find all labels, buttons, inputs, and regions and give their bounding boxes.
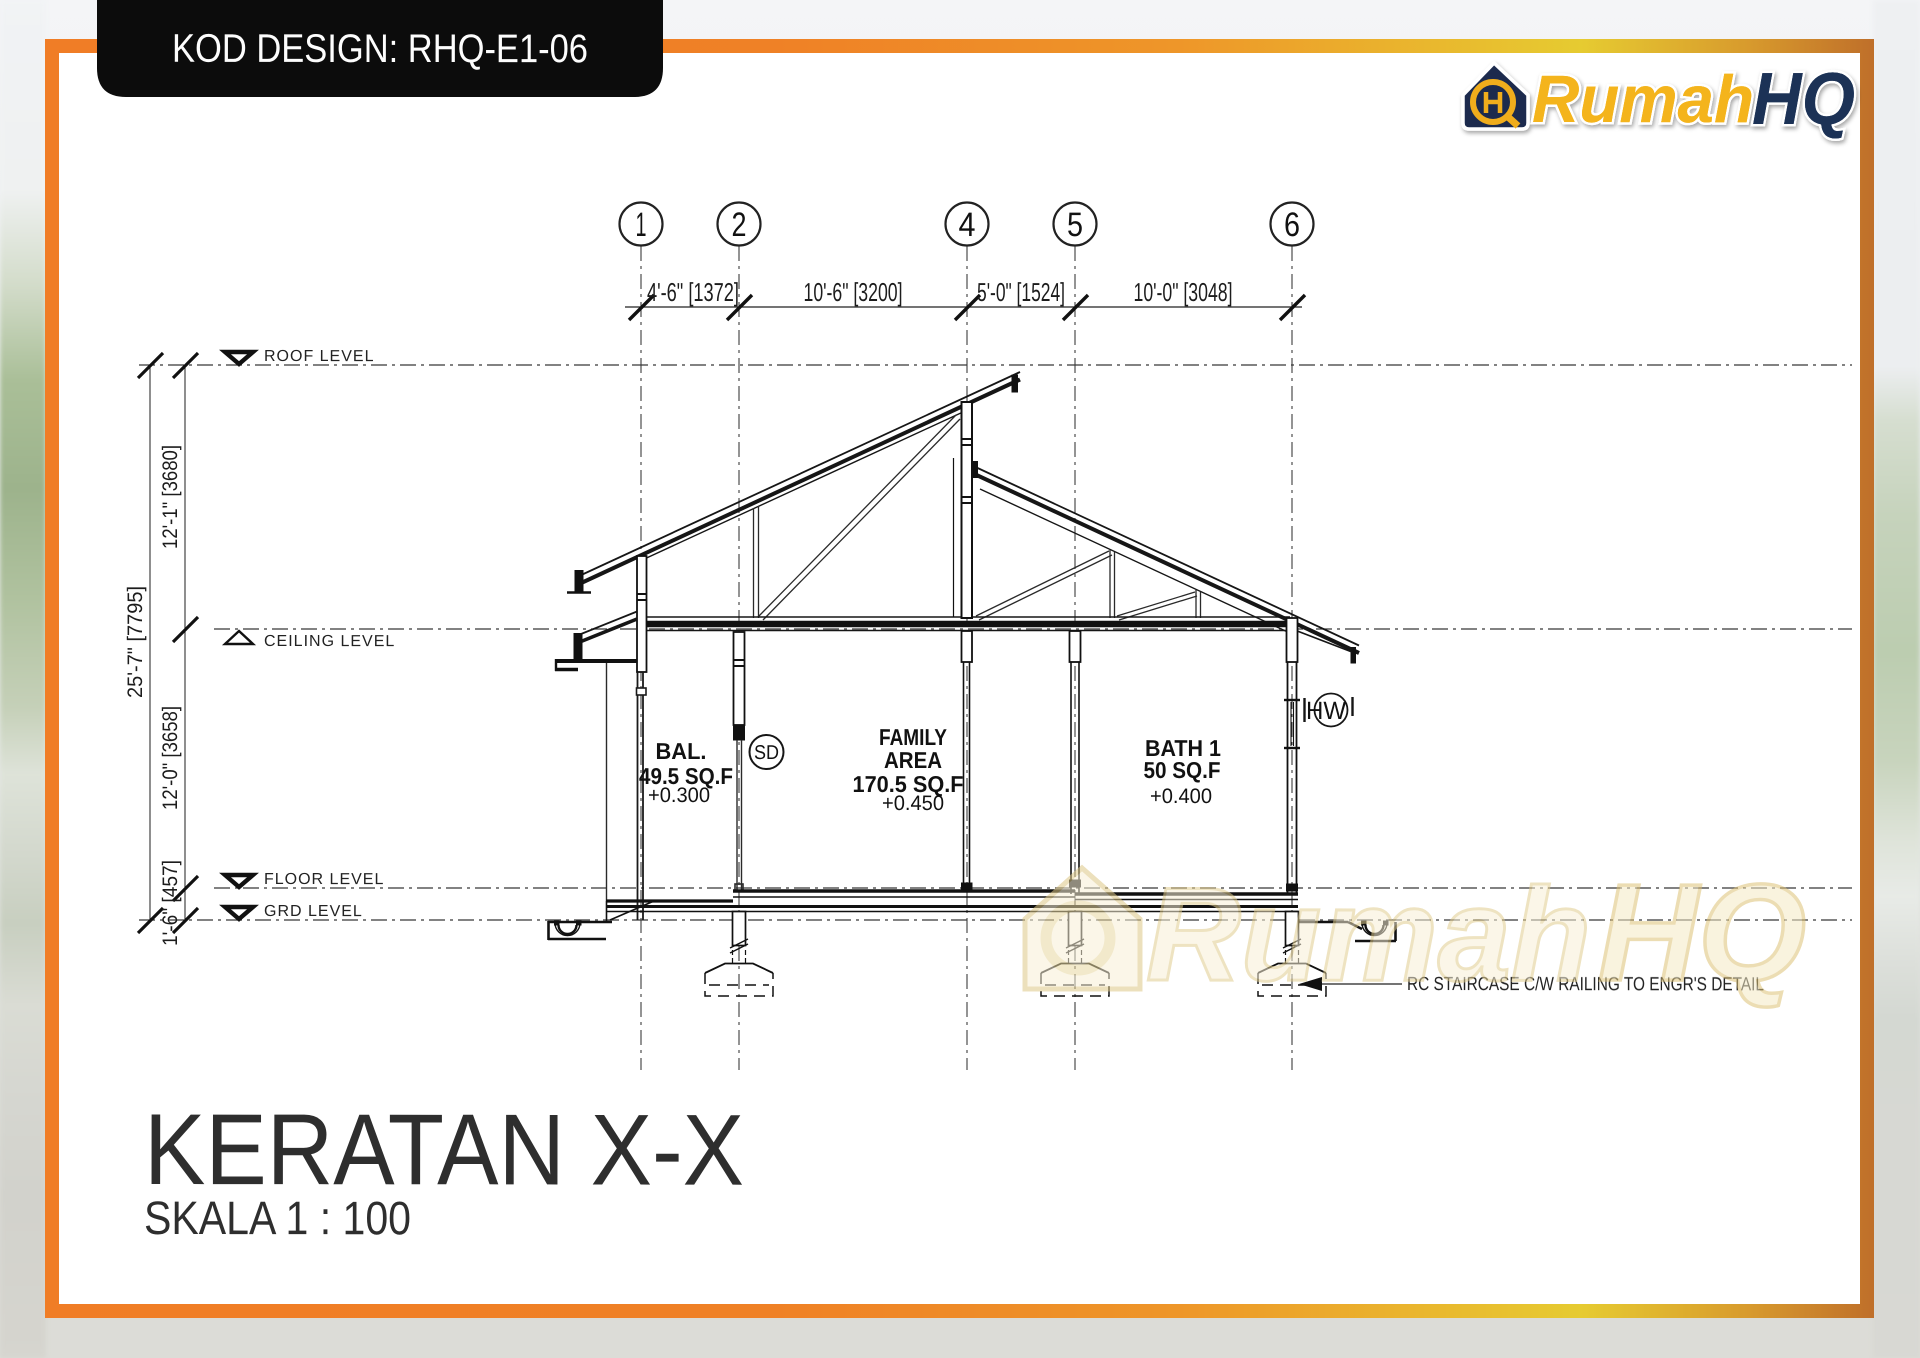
svg-text:12'-0" [3658]: 12'-0" [3658] xyxy=(159,706,182,810)
svg-text:+0.450: +0.450 xyxy=(882,792,944,815)
svg-text:BAL.: BAL. xyxy=(655,738,706,764)
svg-text:Rumah: Rumah xyxy=(1532,62,1754,137)
svg-text:4'-6" [1372]: 4'-6" [1372] xyxy=(647,277,739,307)
svg-text:KOD DESIGN: RHQ-E1-06: KOD DESIGN: RHQ-E1-06 xyxy=(172,27,588,71)
svg-text:50 SQ.F: 50 SQ.F xyxy=(1143,757,1220,783)
svg-text:+0.300: +0.300 xyxy=(648,784,710,807)
svg-text:FLOOR LEVEL: FLOOR LEVEL xyxy=(264,871,384,888)
svg-text:5'-0" [1524]: 5'-0" [1524] xyxy=(977,277,1065,307)
svg-text:HQ: HQ xyxy=(1752,57,1855,140)
svg-text:HQ: HQ xyxy=(1598,856,1806,1010)
svg-text:HW: HW xyxy=(1306,697,1346,725)
svg-text:ROOF LEVEL: ROOF LEVEL xyxy=(264,348,375,365)
svg-text:4: 4 xyxy=(958,206,975,244)
svg-text:AREA: AREA xyxy=(884,747,942,773)
svg-text:5: 5 xyxy=(1067,206,1083,244)
svg-text:1'-6" [457]: 1'-6" [457] xyxy=(159,860,182,946)
svg-text:10'-0" [3048]: 10'-0" [3048] xyxy=(1133,277,1232,307)
svg-text:2: 2 xyxy=(731,206,746,244)
svg-text:KERATAN X-X: KERATAN X-X xyxy=(144,1094,744,1207)
svg-text:CEILING LEVEL: CEILING LEVEL xyxy=(264,633,395,650)
svg-text:GRD LEVEL: GRD LEVEL xyxy=(264,903,363,920)
svg-text:1: 1 xyxy=(635,206,646,244)
svg-text:+0.400: +0.400 xyxy=(1150,785,1212,808)
svg-text:10'-6" [3200]: 10'-6" [3200] xyxy=(803,277,902,307)
svg-text:12'-1" [3680]: 12'-1" [3680] xyxy=(159,445,182,549)
svg-text:25'-7" [7795]: 25'-7" [7795] xyxy=(124,586,147,698)
svg-text:Rumah: Rumah xyxy=(1146,861,1591,1009)
svg-text:SKALA 1 : 100: SKALA 1 : 100 xyxy=(144,1191,411,1244)
svg-text:SD: SD xyxy=(754,742,779,764)
svg-text:6: 6 xyxy=(1284,206,1300,244)
